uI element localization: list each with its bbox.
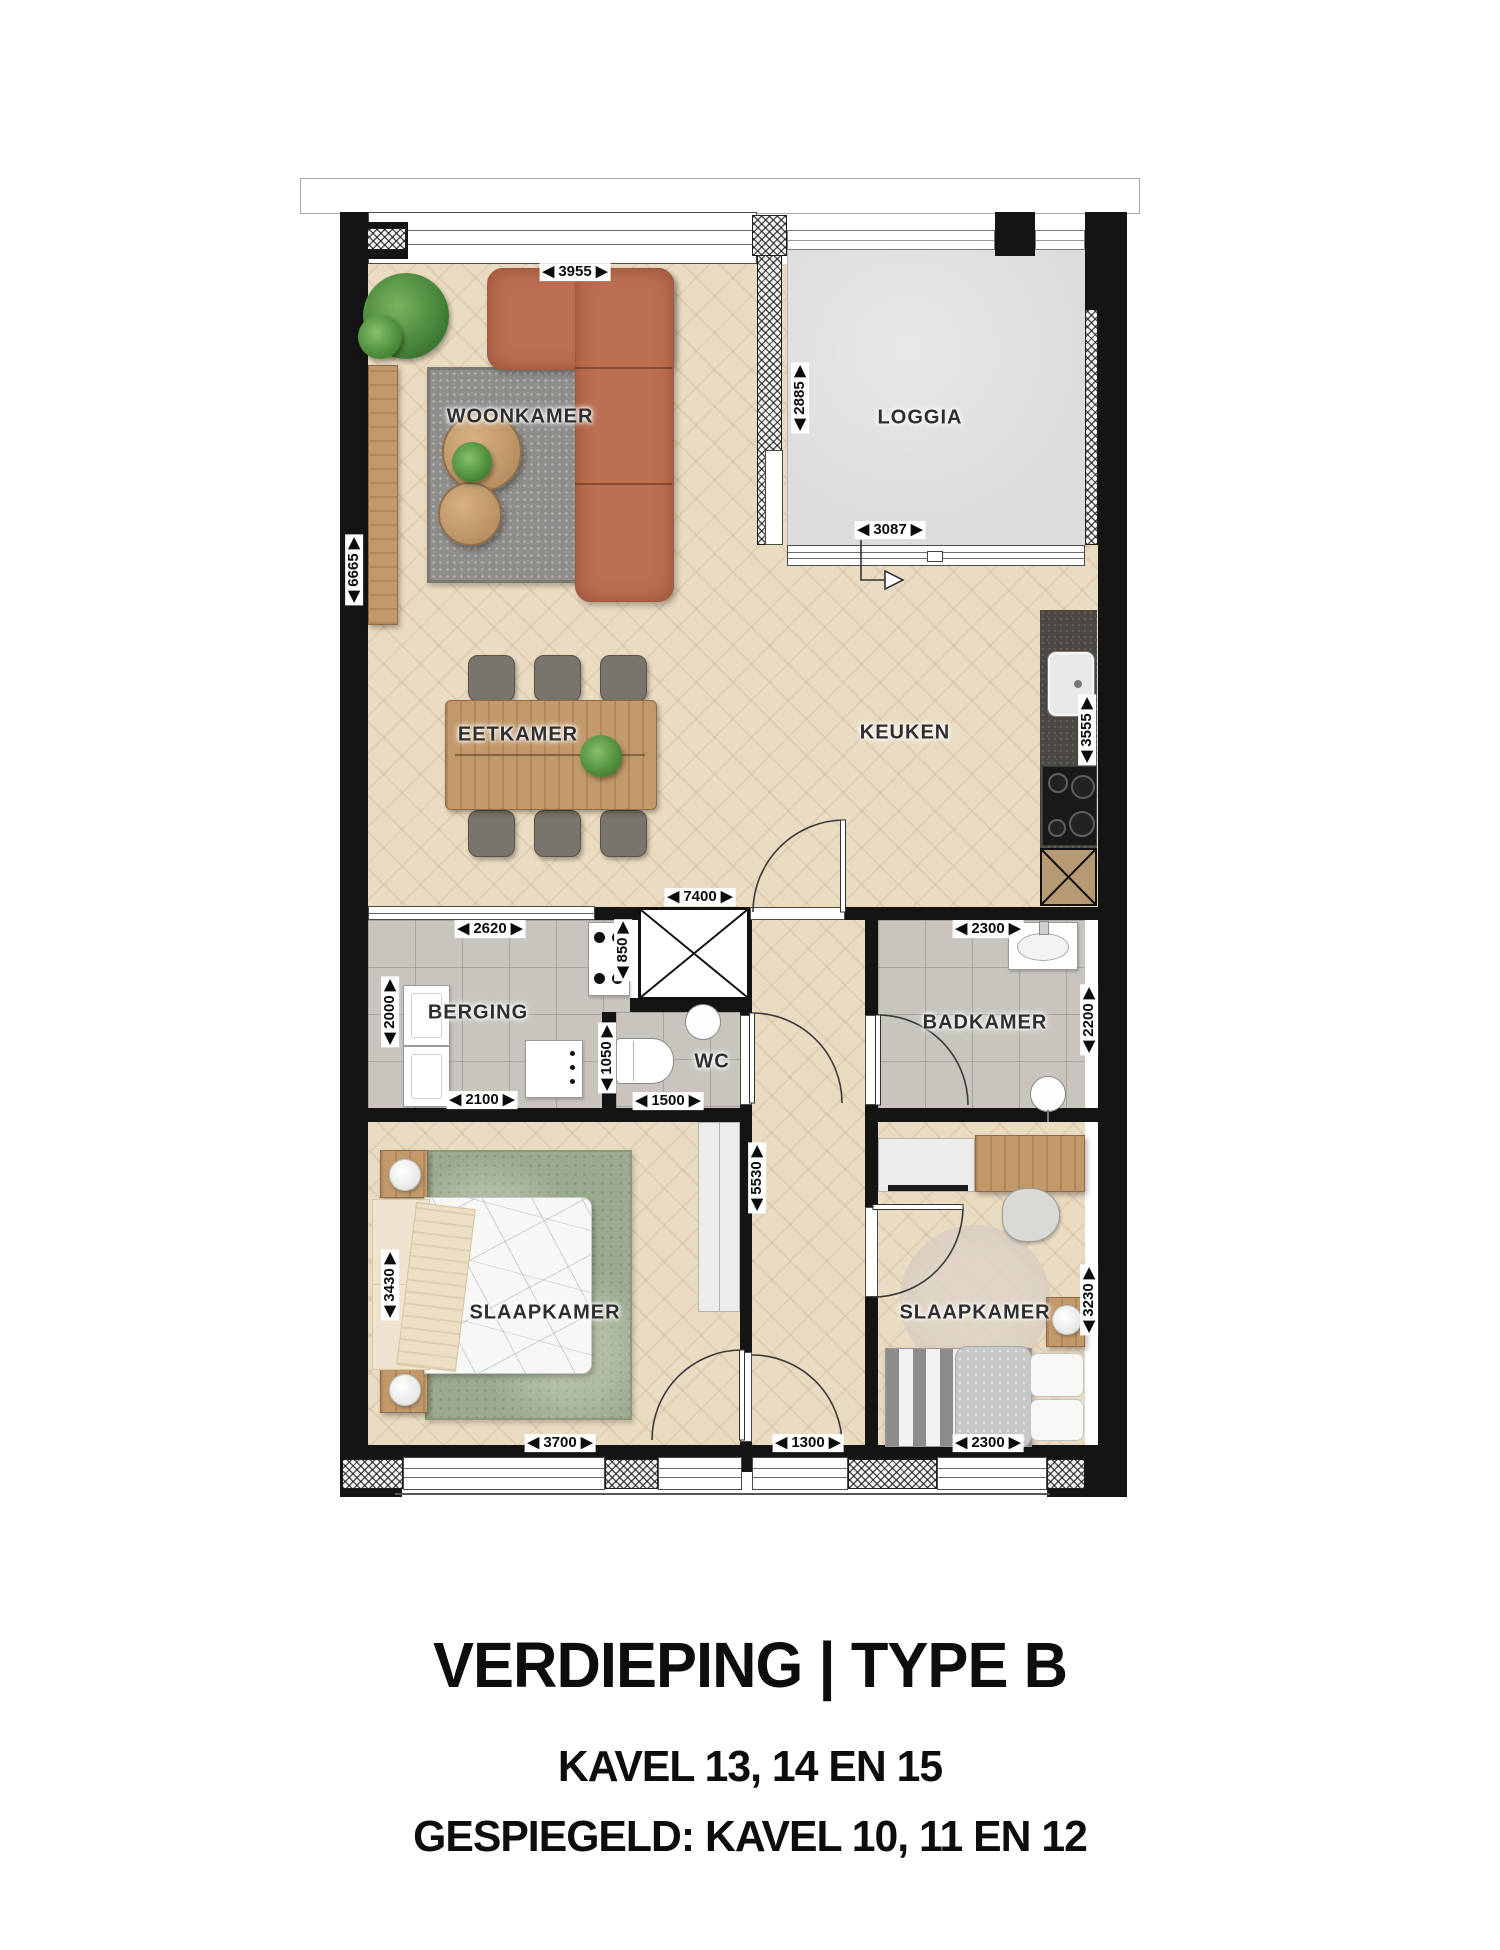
room-label-keuken: KEUKEN xyxy=(860,722,950,745)
dimension-2620: ◀ 2620 ▶ xyxy=(455,920,526,938)
tv-cabinet xyxy=(878,1138,975,1192)
loggia-railing xyxy=(787,230,995,250)
dimension-3087: ◀ 3087 ▶ xyxy=(855,521,926,539)
desk xyxy=(975,1135,1085,1192)
room-label-eetkamer: EETKAMER xyxy=(458,724,578,747)
loggia-side-glazing xyxy=(765,450,783,545)
dimension-3955: ◀ 3955 ▶ xyxy=(540,263,611,281)
dimension-3230: ◀ 3230 ▶ xyxy=(1080,1265,1098,1336)
berging-sliding-door xyxy=(368,906,595,920)
nightstand-lamp xyxy=(389,1159,421,1191)
sideboard xyxy=(368,365,398,625)
dimension-5530: ◀ 5530 ▶ xyxy=(748,1143,766,1214)
sofa-seam xyxy=(575,483,672,485)
bottom-insulation-2 xyxy=(605,1459,658,1489)
loggia-floor xyxy=(787,243,1087,547)
wall-middle-segment-b xyxy=(845,907,1098,920)
burner xyxy=(1069,811,1095,837)
wall-bottom-middle-left xyxy=(340,1108,752,1122)
wall-right xyxy=(1098,212,1127,1497)
coffee-table-small xyxy=(438,482,502,546)
wall-slaapkamer-rechts-upper xyxy=(865,1122,878,1207)
mech-knob xyxy=(594,932,605,943)
wc-toilet xyxy=(616,1038,674,1084)
corner-plant-leaf xyxy=(358,315,402,359)
wall-bottom-middle-right xyxy=(865,1108,1127,1122)
bed-right-blanket xyxy=(955,1346,1032,1448)
slaapkamer-links-door-opening xyxy=(740,1352,752,1442)
room-label-loggia: LOGGIA xyxy=(878,407,963,430)
kitchen-cabinet-x xyxy=(1040,848,1097,906)
room-label-slaapkamer-rechts: SLAAPKAMER xyxy=(899,1302,1050,1325)
dining-chair xyxy=(468,810,515,857)
slaapkamer-rechts-window xyxy=(937,1457,1047,1490)
room-label-berging: BERGING xyxy=(428,1002,528,1025)
hal-window xyxy=(752,1457,848,1490)
wall-badkamer-left-upper xyxy=(865,907,878,1015)
tv xyxy=(888,1185,968,1191)
dimension-2300-badkamer: ◀ 2300 ▶ xyxy=(953,920,1024,938)
badkamer-door-opening xyxy=(865,1015,878,1105)
floorplan-page: WOONKAMER LOGGIA EETKAMER KEUKEN BERGING… xyxy=(0,0,1500,1950)
burner xyxy=(1048,819,1066,837)
dimension-3430: ◀ 3430 ▶ xyxy=(381,1250,399,1321)
mech-knob xyxy=(594,973,605,984)
berging-cabinet xyxy=(525,1040,583,1098)
plan-title: VERDIEPING | TYPE B xyxy=(30,1628,1470,1702)
bottom-insulation-3 xyxy=(848,1459,937,1489)
nightstand-lamp xyxy=(389,1374,421,1406)
dining-chair xyxy=(534,810,581,857)
window-loggia-mullion xyxy=(752,215,787,256)
hal-floor xyxy=(752,920,865,1445)
dining-chair xyxy=(534,655,581,702)
dimension-2300-slaapkamer: ◀ 2300 ▶ xyxy=(953,1434,1024,1452)
loggia-railing-segment xyxy=(1035,230,1085,250)
bed-right-pillow xyxy=(1030,1399,1084,1441)
shaft-box xyxy=(638,907,750,1000)
dryer xyxy=(403,1046,450,1107)
bottom-insulation-4 xyxy=(1047,1459,1085,1489)
dimension-3555: ◀ 3555 ▶ xyxy=(1078,695,1096,766)
dimension-1500: ◀ 1500 ▶ xyxy=(633,1092,704,1110)
dimension-3700: ◀ 3700 ▶ xyxy=(525,1434,596,1452)
dining-chair xyxy=(600,655,647,702)
cabinet-dot xyxy=(570,1051,575,1056)
dimension-6665: ◀ 6665 ▶ xyxy=(345,535,363,606)
dimension-850: ◀ 850 ▶ xyxy=(614,919,632,981)
slaapkamer-rechts-door-opening xyxy=(865,1207,878,1297)
shower-drain xyxy=(1030,1076,1066,1112)
cooktop xyxy=(1042,766,1097,846)
wc-door-opening xyxy=(740,1015,752,1105)
dimension-1050: ◀ 1050 ▶ xyxy=(598,1023,616,1094)
dimension-2100: ◀ 2100 ▶ xyxy=(447,1091,518,1109)
bed-right-pillow xyxy=(1030,1353,1084,1397)
cabinet-dot xyxy=(570,1079,575,1084)
slaapkamer-links-window-b xyxy=(658,1457,742,1490)
dining-chair xyxy=(600,810,647,857)
floor-plan: WOONKAMER LOGGIA EETKAMER KEUKEN BERGING… xyxy=(340,207,1127,1497)
bottom-insulation-1 xyxy=(342,1459,403,1489)
room-label-woonkamer: WOONKAMER xyxy=(447,406,594,429)
plan-subtitle-gespiegeld: GESPIEGELD: KAVEL 10, 11 EN 12 xyxy=(23,1812,1478,1862)
desk-chair xyxy=(1002,1188,1060,1242)
dimension-2885: ◀ 2885 ▶ xyxy=(791,363,809,434)
dimension-2200: ◀ 2200 ▶ xyxy=(1080,985,1098,1056)
dimension-2000: ◀ 2000 ▶ xyxy=(381,977,399,1048)
woonkamer-window xyxy=(368,212,757,264)
wardrobe xyxy=(698,1122,740,1312)
nightstand-lamp xyxy=(1052,1305,1082,1335)
cabinet-dot xyxy=(570,1065,575,1070)
loggia-door-mullion xyxy=(927,551,943,562)
dimension-7400: ◀ 7400 ▶ xyxy=(665,888,736,906)
wall-left xyxy=(340,212,368,1497)
entry-door-opening xyxy=(750,907,845,920)
loggia-top-pier xyxy=(995,212,1035,256)
wall-slaapkamer-rechts-lower xyxy=(865,1297,878,1445)
wc-basin xyxy=(685,1004,721,1040)
slaapkamer-links-window-a xyxy=(403,1457,605,1490)
shower-hose xyxy=(1047,1110,1049,1122)
dining-chair xyxy=(468,655,515,702)
burner xyxy=(1048,773,1068,793)
room-label-wc: WC xyxy=(694,1051,729,1074)
coffee-table-plant xyxy=(452,442,492,482)
room-label-badkamer: BADKAMER xyxy=(923,1012,1048,1035)
dining-table-plant xyxy=(580,735,622,777)
plan-subtitle-kavels: KAVEL 13, 14 EN 15 xyxy=(23,1742,1478,1792)
room-label-slaapkamer-links: SLAAPKAMER xyxy=(469,1302,620,1325)
dimension-1300: ◀ 1300 ▶ xyxy=(773,1434,844,1452)
bottom-facade-line xyxy=(395,1493,1050,1495)
burner xyxy=(1071,775,1095,799)
sofa-right-section xyxy=(575,268,674,602)
sofa-seam xyxy=(575,367,672,369)
